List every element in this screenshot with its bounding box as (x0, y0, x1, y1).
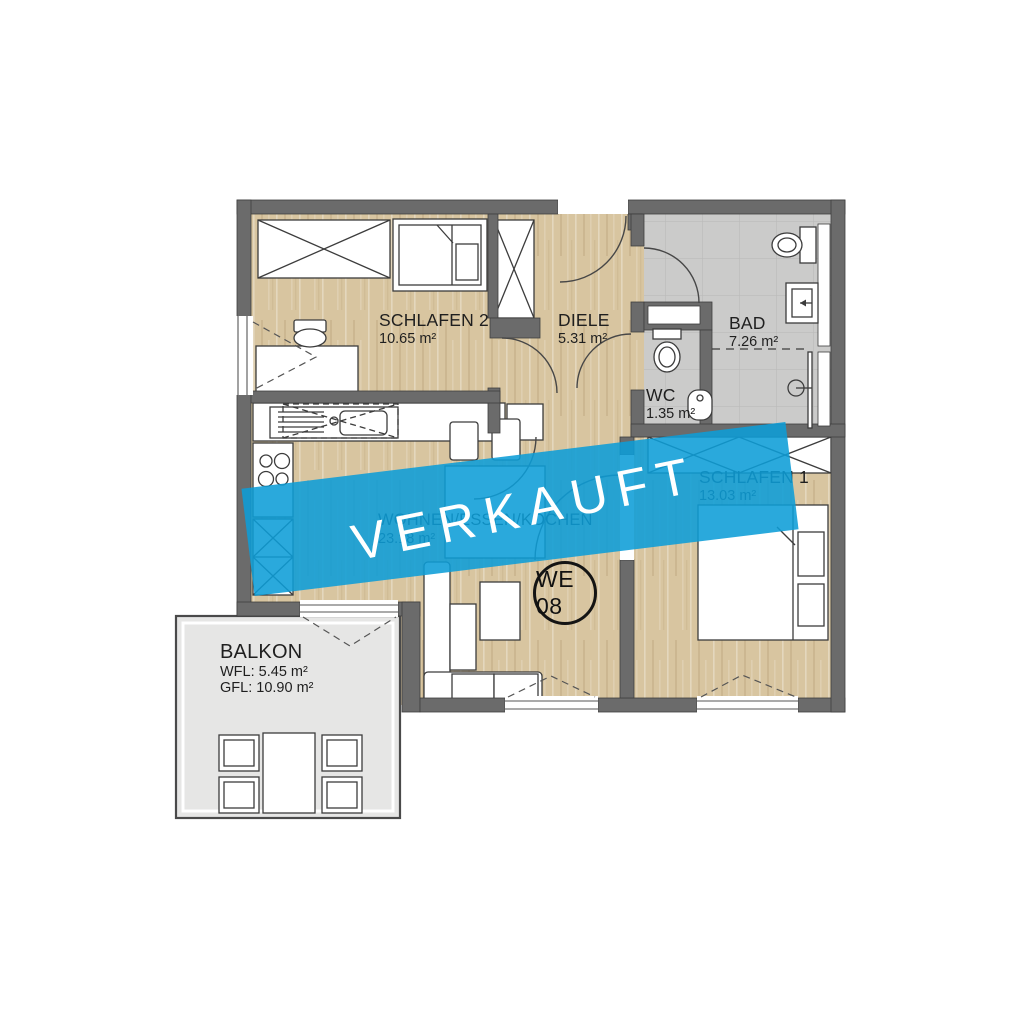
room-label-wc: WC 1.35 m² (646, 386, 695, 423)
balkon-wfl: WFL: 5.45 m² (220, 665, 313, 681)
wall-niche (818, 224, 830, 346)
room-name: BAD (729, 314, 778, 333)
sofa-cushion (450, 604, 476, 670)
room-name: BALKON (220, 642, 313, 664)
coffee-table (480, 582, 520, 640)
balcony-door-window (300, 600, 398, 617)
wc-toilet (653, 329, 681, 372)
pillow (798, 584, 824, 626)
desk (256, 346, 358, 394)
balcony-chair (322, 777, 362, 813)
washbasin (786, 283, 818, 323)
room-label-diele: DIELE 5.31 m² (558, 311, 610, 348)
balcony-chair (219, 777, 259, 813)
balcony-chair (219, 735, 259, 771)
wall-niche (818, 352, 830, 426)
balcony-chair (322, 735, 362, 771)
floorplan-page: SCHLAFEN 2 10.65 m² DIELE 5.31 m² BAD 7.… (0, 0, 1024, 1024)
room-label-bad: BAD 7.26 m² (729, 314, 778, 351)
room-area: 10.65 m² (379, 332, 489, 348)
room-area: 7.26 m² (729, 335, 778, 351)
room-name: SCHLAFEN 2 (379, 311, 489, 330)
balkon-gfl: GFL: 10.90 m² (220, 681, 313, 697)
balcony-table (263, 733, 315, 813)
wc-niche (648, 306, 700, 324)
pillow (456, 244, 478, 280)
unit-number-badge: WE 08 (533, 561, 597, 625)
unit-number: WE 08 (536, 566, 594, 620)
shower-glass (808, 352, 812, 428)
room-label-schlafen2: SCHLAFEN 2 10.65 m² (379, 311, 489, 348)
desk-chair-seat (294, 329, 326, 347)
pillow (798, 532, 824, 576)
window (697, 696, 798, 713)
diele-furniture (494, 220, 534, 318)
entry-opening (558, 199, 628, 214)
window (505, 696, 598, 713)
room-name: DIELE (558, 311, 610, 330)
room-name: WC (646, 386, 695, 405)
room-label-balkon: BALKON WFL: 5.45 m² GFL: 10.90 m² (220, 642, 313, 697)
room-area: 1.35 m² (646, 407, 695, 423)
room-area: 5.31 m² (558, 332, 610, 348)
dining-chair (450, 422, 478, 460)
sofa-cushion (452, 674, 494, 700)
window (233, 316, 253, 395)
